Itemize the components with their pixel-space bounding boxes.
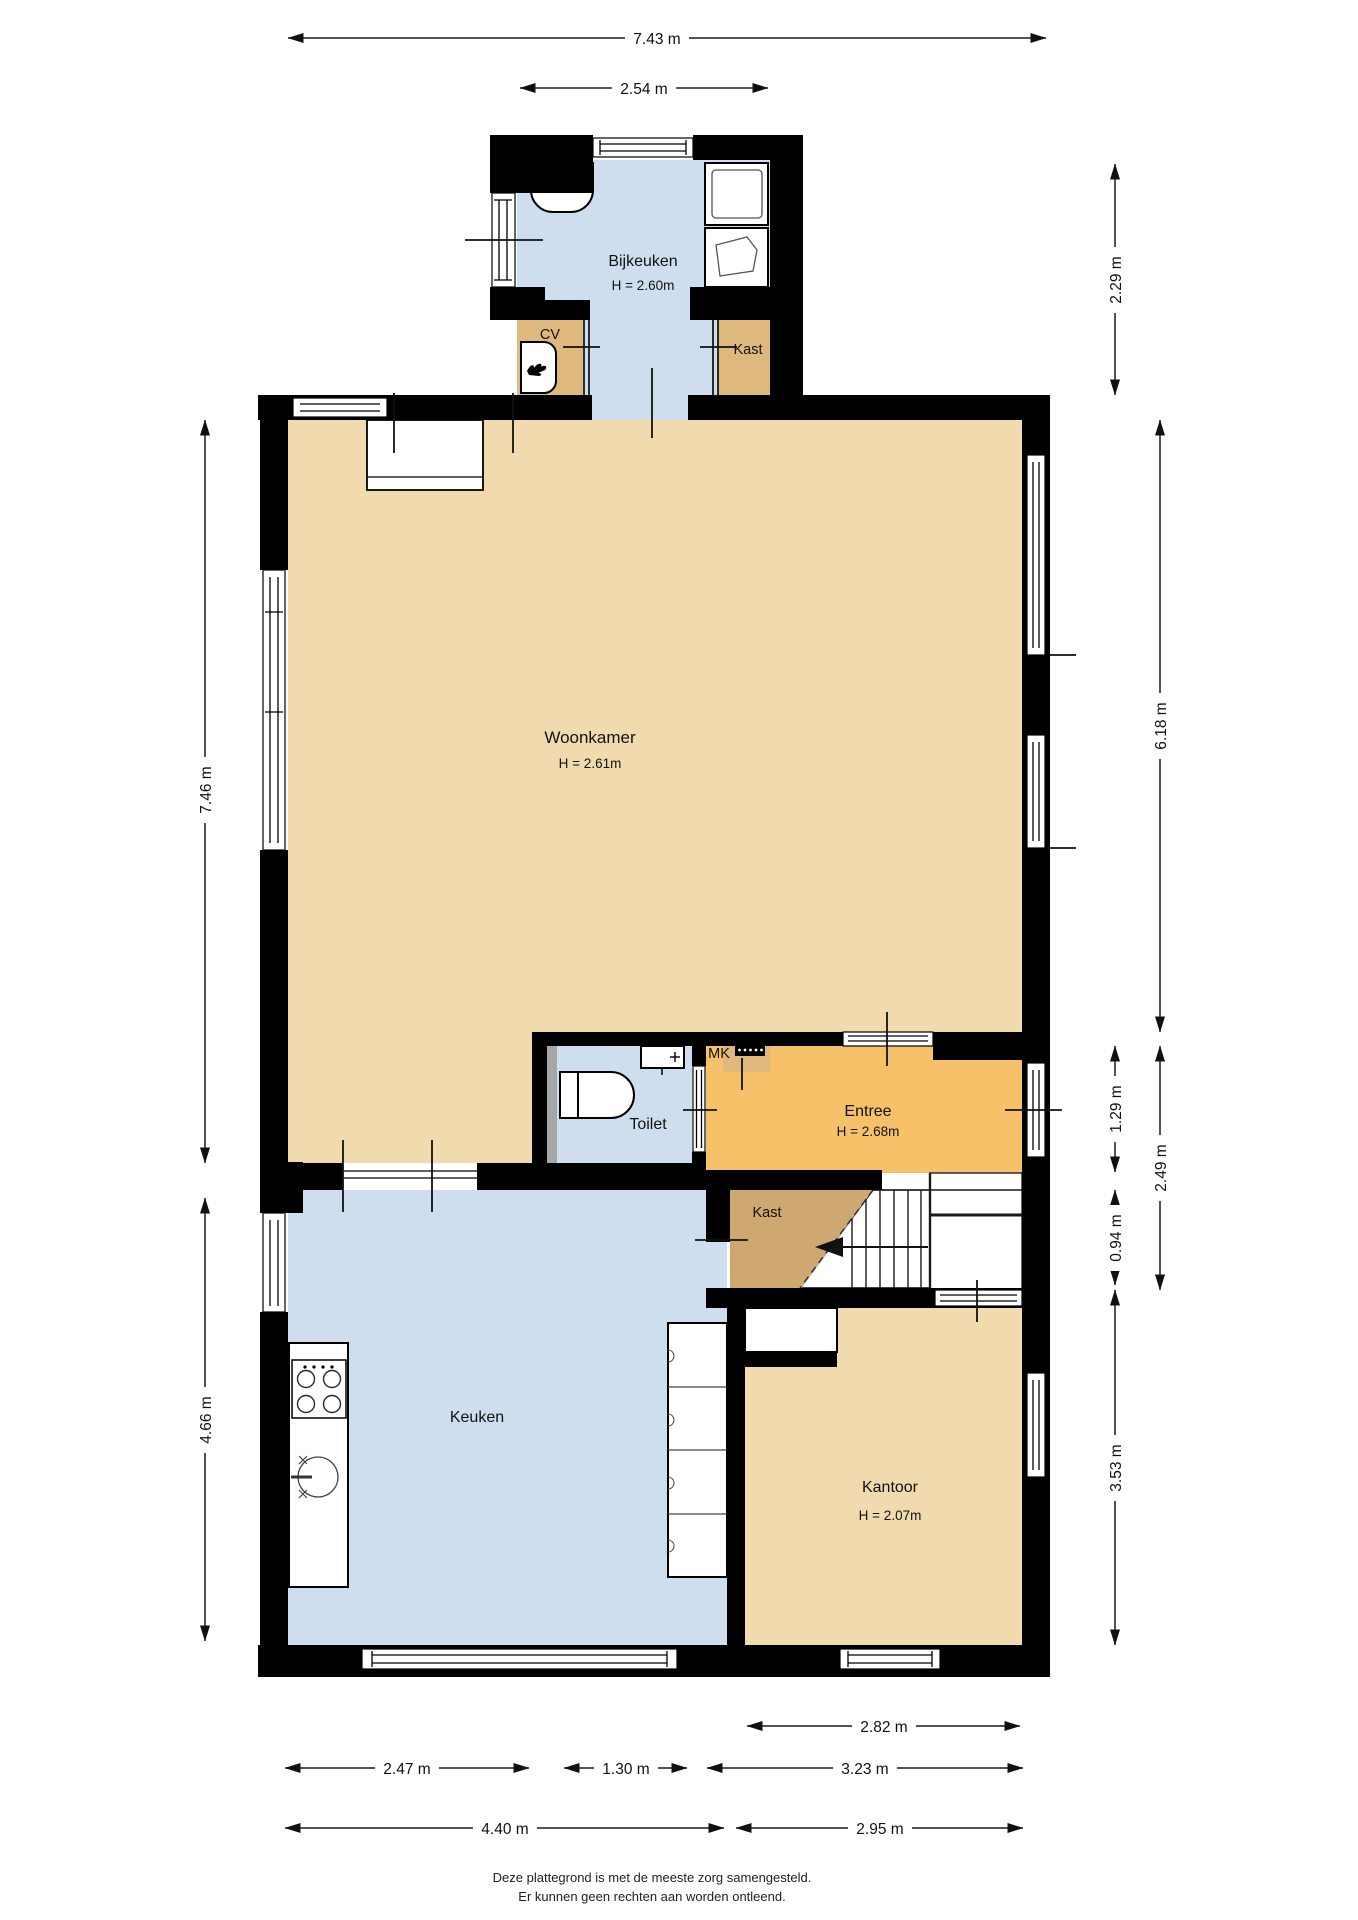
footer-line2: Er kunnen geen rechten aan worden ontlee… xyxy=(518,1889,785,1904)
floorplan-page: Bijkeuken H = 2.60m CV Kast Woonkamer H … xyxy=(0,0,1358,1920)
front-door xyxy=(843,1032,933,1046)
label-entree: Entree xyxy=(844,1103,891,1120)
toilet-icon xyxy=(560,1072,634,1118)
svg-text:2.82 m: 2.82 m xyxy=(860,1719,907,1736)
label-kantoor: Kantoor xyxy=(862,1479,919,1496)
dim-right-kantoor: 3.53 m xyxy=(1104,1290,1126,1645)
toilet-door xyxy=(693,1066,705,1152)
svg-text:2.49 m: 2.49 m xyxy=(1153,1144,1170,1191)
sideboard-icon xyxy=(367,420,483,490)
svg-text:1.30 m: 1.30 m xyxy=(602,1761,649,1778)
label-cv: CV xyxy=(540,327,560,343)
svg-text:7.46 m: 7.46 m xyxy=(198,766,215,813)
dim-left-keuken: 4.66 m xyxy=(194,1198,216,1641)
dim-keuken-total: 4.40 m xyxy=(285,1817,724,1839)
svg-text:3.23 m: 3.23 m xyxy=(841,1761,888,1778)
kantoor-door xyxy=(935,1290,1022,1306)
dim-kantoor-width: 2.95 m xyxy=(736,1817,1023,1839)
window-left-keuken xyxy=(263,1213,285,1312)
room-keuken-floor xyxy=(288,1187,727,1645)
window-right-woonkamer-1 xyxy=(1027,455,1045,655)
laundry-basket-icon xyxy=(705,228,768,287)
window-right-kantoor xyxy=(1027,1373,1045,1477)
label-bijkeuken: Bijkeuken xyxy=(608,253,677,270)
stairs xyxy=(730,1173,1022,1293)
washer-icon xyxy=(705,163,768,225)
label-woonkamer-height: H = 2.61m xyxy=(559,756,622,771)
svg-text:0.94 m: 0.94 m xyxy=(1108,1214,1125,1261)
stove-icon xyxy=(292,1360,346,1418)
svg-text:2.47 m: 2.47 m xyxy=(383,1761,430,1778)
label-toilet: Toilet xyxy=(629,1116,667,1133)
label-bijkeuken-height: H = 2.60m xyxy=(612,278,675,293)
dim-right-woonkamer: 6.18 m xyxy=(1149,420,1171,1032)
window-top-left xyxy=(293,398,387,417)
meter-panel-icon xyxy=(735,1044,765,1056)
label-entree-height: H = 2.68m xyxy=(837,1124,900,1139)
dim-total-width: 7.43 m xyxy=(288,27,1046,49)
label-woonkamer: Woonkamer xyxy=(544,728,636,747)
label-kast-mid: Kast xyxy=(752,1205,781,1221)
dim-bijkeuken-width: 2.54 m xyxy=(520,77,768,99)
footer-line1: Deze plattegrond is met de meeste zorg s… xyxy=(493,1870,812,1885)
svg-text:6.18 m: 6.18 m xyxy=(1153,702,1170,749)
boiler-icon xyxy=(521,342,556,393)
svg-text:2.29 m: 2.29 m xyxy=(1108,256,1125,303)
kantoor-closet xyxy=(745,1308,837,1352)
label-mk: MK xyxy=(708,1046,730,1062)
dim-keuken-left: 2.47 m xyxy=(285,1757,529,1779)
dim-right-bijkeuken: 2.29 m xyxy=(1104,164,1126,395)
dim-right-kast-row: 0.94 m xyxy=(1104,1190,1126,1285)
window-right-woonkamer-2 xyxy=(1027,735,1045,848)
svg-text:3.53 m: 3.53 m xyxy=(1108,1444,1125,1491)
floorplan-canvas: Bijkeuken H = 2.60m CV Kast Woonkamer H … xyxy=(0,0,1358,1920)
label-kantoor-height: H = 2.07m xyxy=(859,1508,922,1523)
window-bottom-kantoor xyxy=(840,1649,940,1669)
dim-right-entree: 1.29 m xyxy=(1104,1046,1126,1172)
label-kast-top: Kast xyxy=(733,342,762,358)
pillar xyxy=(547,1046,557,1163)
window-bottom-keuken xyxy=(362,1649,677,1669)
svg-text:2.95 m: 2.95 m xyxy=(856,1821,903,1838)
svg-text:4.40 m: 4.40 m xyxy=(481,1821,528,1838)
svg-text:1.29 m: 1.29 m xyxy=(1108,1085,1125,1132)
footer: Deze plattegrond is met de meeste zorg s… xyxy=(493,1870,812,1904)
dim-toilet-width: 1.30 m xyxy=(564,1757,687,1779)
dim-kantoor-inner: 2.82 m xyxy=(747,1715,1020,1737)
stairs-landing xyxy=(930,1173,1022,1293)
window-bijkeuken-top xyxy=(593,138,693,157)
room-fills xyxy=(288,160,1022,1645)
dim-right-entree-kast: 2.49 m xyxy=(1149,1046,1171,1290)
label-keuken: Keuken xyxy=(450,1409,504,1426)
kitchen-cabinets xyxy=(668,1323,727,1577)
dim-entree-stairs: 3.23 m xyxy=(707,1757,1023,1779)
svg-text:4.66 m: 4.66 m xyxy=(198,1396,215,1443)
keuken-divider-door xyxy=(343,1163,477,1190)
window-left-woonkamer xyxy=(263,570,285,850)
svg-text:2.54 m: 2.54 m xyxy=(620,81,667,98)
dim-left-woonkamer: 7.46 m xyxy=(194,420,216,1163)
svg-text:7.43 m: 7.43 m xyxy=(633,31,680,48)
